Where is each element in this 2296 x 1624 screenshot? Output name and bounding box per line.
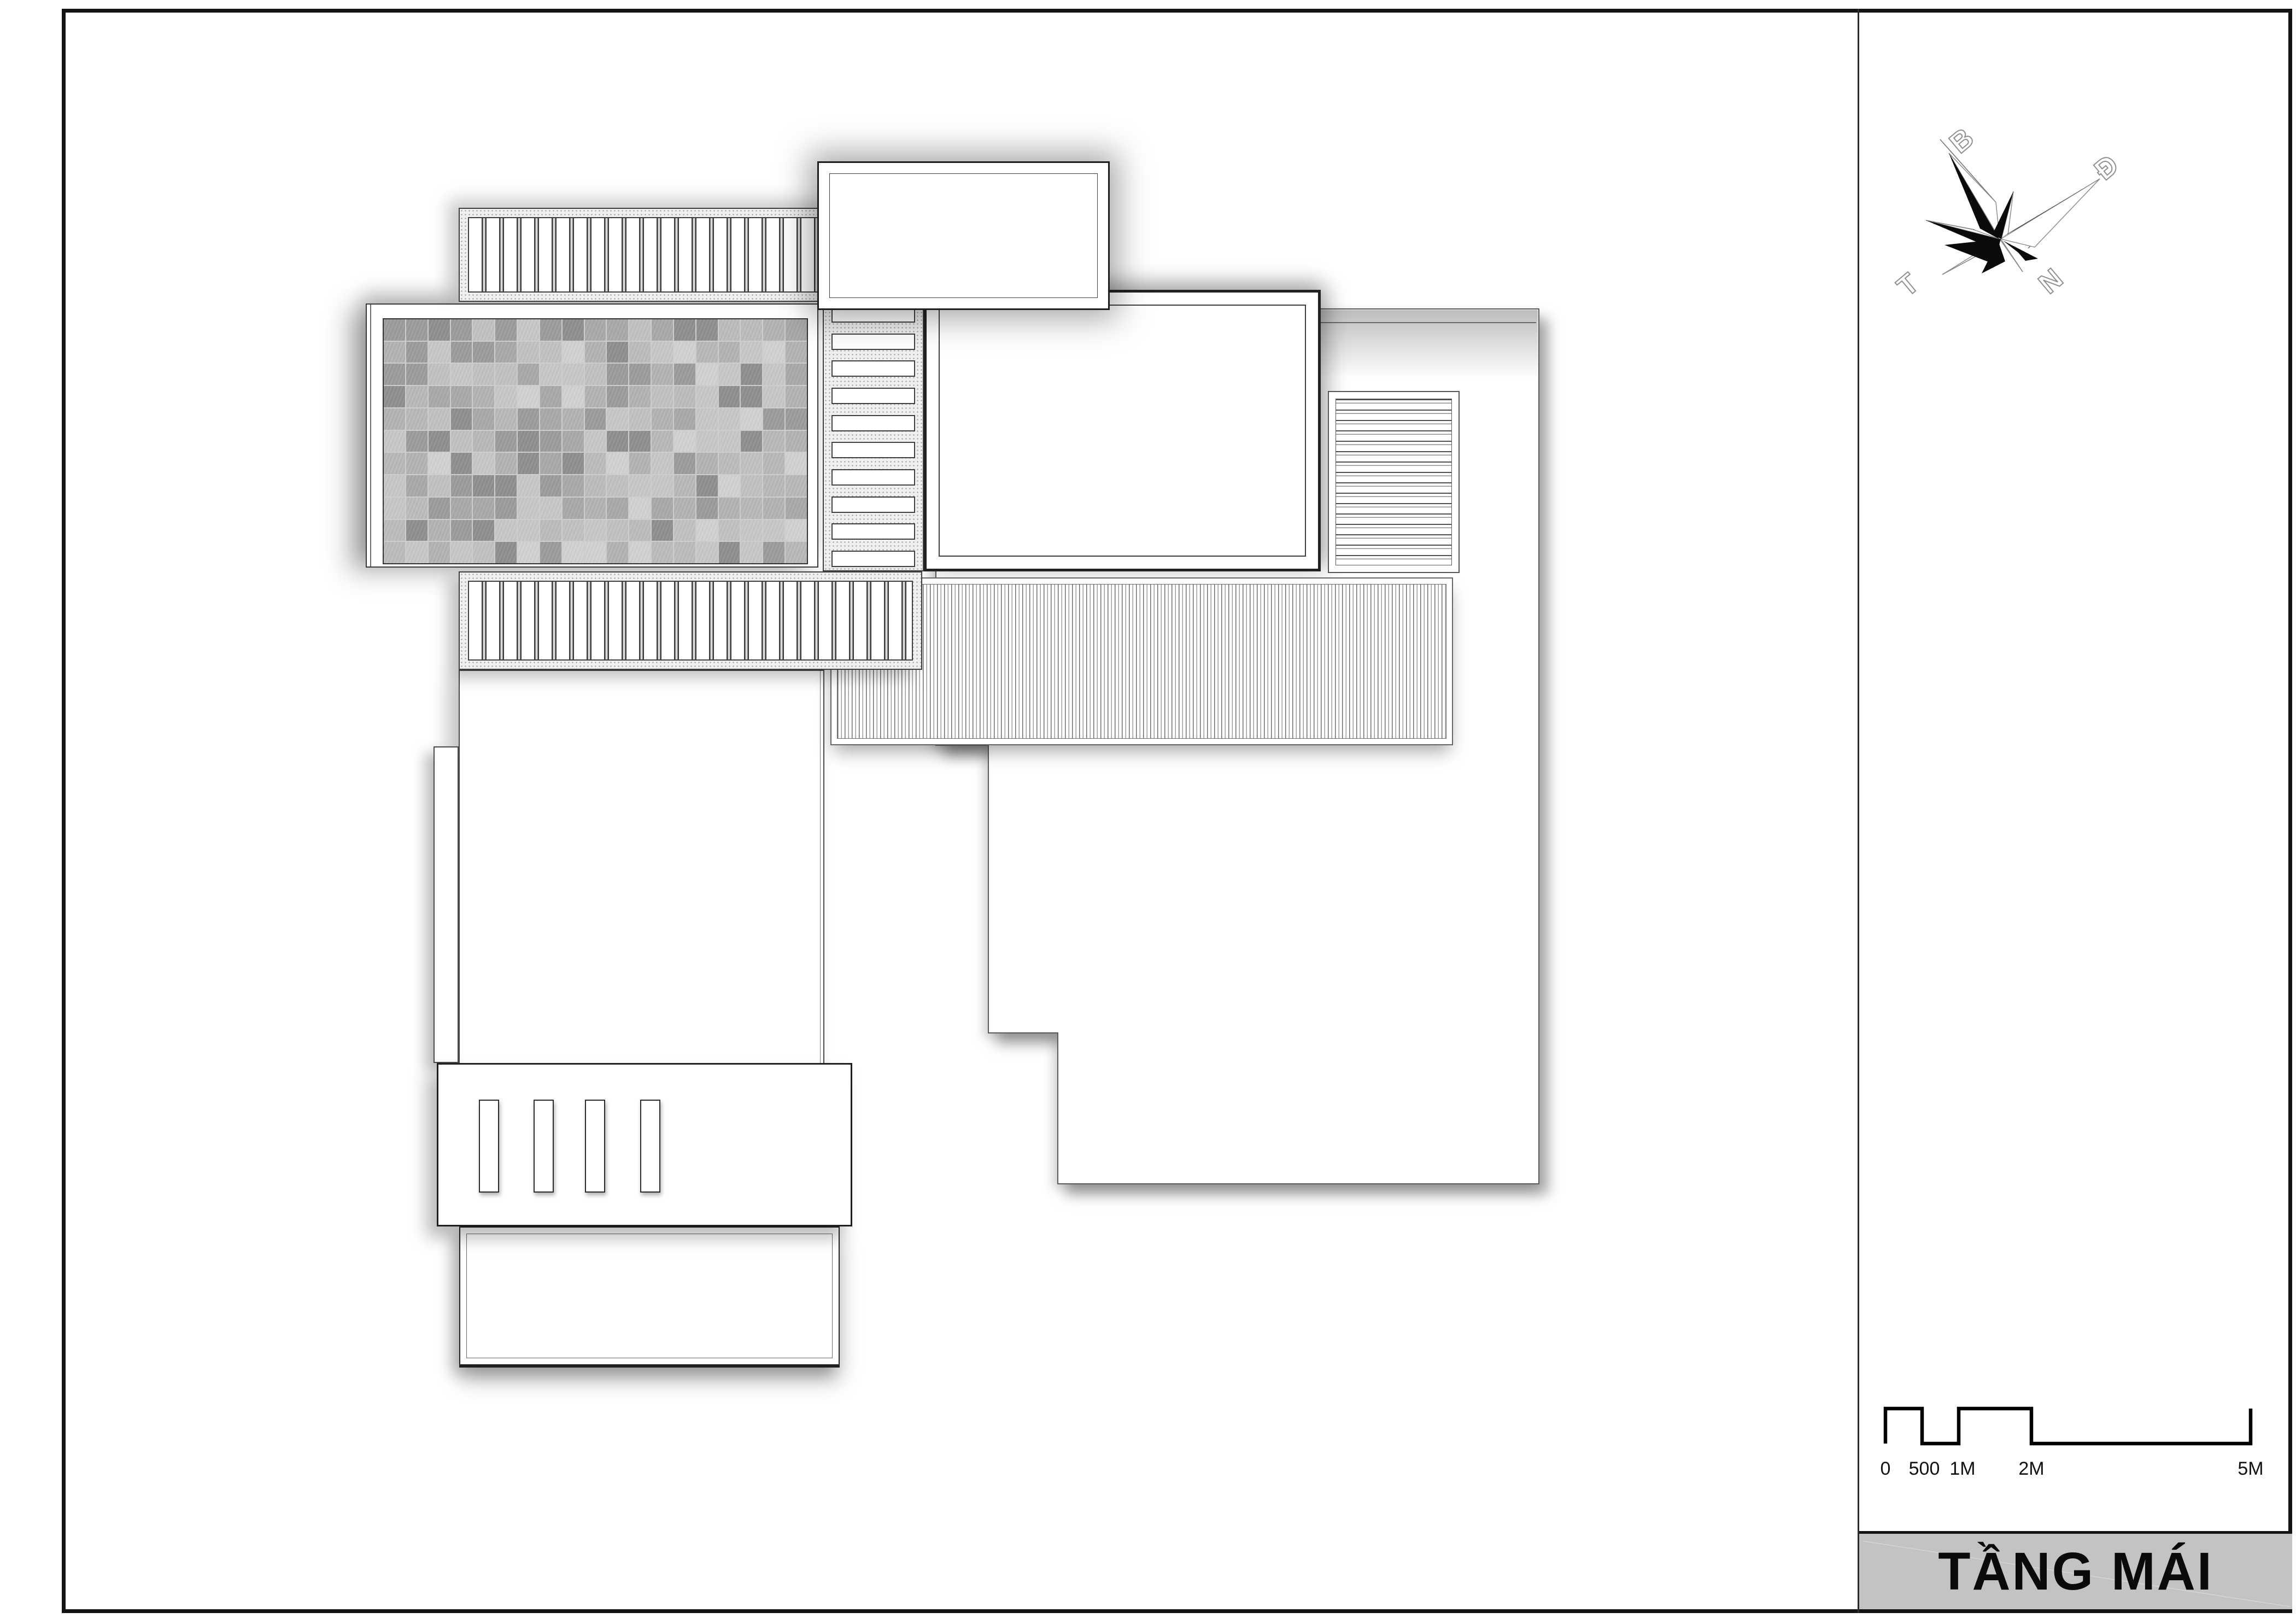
terrace-tile — [741, 453, 762, 474]
terrace-tile — [540, 364, 561, 385]
terrace-tile — [763, 364, 784, 385]
terrace-tile — [652, 319, 673, 341]
terrace-tile — [585, 408, 606, 430]
terrace-tile — [719, 386, 740, 407]
terrace-tile — [384, 431, 405, 452]
terrace-tile — [540, 431, 561, 452]
scale-label: 5M — [2238, 1458, 2263, 1479]
terrace-tile — [652, 453, 673, 474]
terrace-tile — [563, 542, 584, 563]
terrace-tile — [652, 342, 673, 363]
terrace-tile — [406, 342, 427, 363]
terrace-tile — [451, 319, 472, 341]
terrace-tile — [607, 408, 628, 430]
terrace-tile — [495, 386, 517, 407]
terrace-tile — [629, 364, 651, 385]
louver-ladder-bar — [831, 442, 915, 458]
terrace-tile — [696, 453, 718, 474]
canopy-slat — [640, 1100, 660, 1193]
terrace-tile — [495, 431, 517, 452]
terrace-tile — [540, 408, 561, 430]
terrace-tile — [696, 386, 718, 407]
terrace-tile — [473, 364, 494, 385]
terrace-tile — [429, 453, 450, 474]
terrace-tile — [540, 319, 561, 341]
terrace-tile — [585, 319, 606, 341]
terrace-tile — [563, 386, 584, 407]
terrace-tile — [563, 342, 584, 363]
louver-ladder-bar — [831, 334, 915, 350]
terrace-tile — [629, 475, 651, 496]
roof-terrace-tiles — [383, 318, 808, 564]
terrace-tile — [696, 520, 718, 541]
terrace-tile — [518, 475, 539, 496]
terrace-tile — [585, 453, 606, 474]
terrace-tile — [629, 319, 651, 341]
terrace-tile — [786, 342, 807, 363]
scale-bar: 0 500 1M 2M 5M — [1870, 1392, 2285, 1496]
terrace-tile — [451, 520, 472, 541]
terrace-tile — [741, 386, 762, 407]
terrace-tile — [763, 498, 784, 519]
terrace-tile — [674, 319, 695, 341]
compass-west-label: T — [1891, 267, 1925, 303]
terrace-tile — [629, 520, 651, 541]
terrace-tile — [607, 364, 628, 385]
terrace-tile — [384, 319, 405, 341]
terrace-tile — [495, 342, 517, 363]
terrace-tile — [652, 520, 673, 541]
terrace-tile — [406, 386, 427, 407]
scale-bar-line — [1885, 1409, 2251, 1444]
terrace-tile — [629, 453, 651, 474]
terrace-tile — [674, 542, 695, 563]
terrace-tile — [406, 475, 427, 496]
terrace-tile — [607, 453, 628, 474]
terrace-tile — [696, 408, 718, 430]
terrace-tile — [518, 498, 539, 519]
terrace-tile — [696, 542, 718, 563]
terrace-tile — [406, 542, 427, 563]
terrace-tile — [563, 498, 584, 519]
terrace-tile — [719, 542, 740, 563]
terrace-tile — [518, 453, 539, 474]
terrace-tile — [473, 542, 494, 563]
terrace-tile — [384, 498, 405, 519]
terrace-tile — [473, 342, 494, 363]
terrace-tile — [518, 408, 539, 430]
terrace-tile — [786, 386, 807, 407]
terrace-tile — [786, 475, 807, 496]
terrace-tile — [518, 319, 539, 341]
middle-roof-box-inner-line — [939, 305, 1306, 557]
middle-roof-box — [924, 290, 1321, 571]
terrace-tile — [607, 520, 628, 541]
compass-white-blades — [1926, 153, 2100, 274]
upper-roof-box-inner-line — [829, 173, 1098, 298]
terrace-tile — [384, 342, 405, 363]
terrace-tile — [629, 431, 651, 452]
terrace-tile — [473, 453, 494, 474]
terrace-tile — [384, 386, 405, 407]
lower-roof-box — [459, 1226, 840, 1368]
terrace-tile — [563, 520, 584, 541]
terrace-tile — [786, 542, 807, 563]
terrace-tile — [719, 498, 740, 519]
terrace-tile — [786, 431, 807, 452]
terrace-tile — [763, 542, 784, 563]
terrace-tile — [384, 542, 405, 563]
louver-ladder-bar — [831, 496, 915, 513]
terrace-tile — [429, 498, 450, 519]
terrace-tile — [786, 520, 807, 541]
terrace-tile — [629, 498, 651, 519]
terrace-tile — [652, 386, 673, 407]
terrace-tile — [451, 364, 472, 385]
terrace-tile — [406, 520, 427, 541]
terrace-tile — [451, 542, 472, 563]
terrace-tile — [719, 319, 740, 341]
terrace-tile — [674, 364, 695, 385]
terrace-tile — [652, 498, 673, 519]
terrace-tile — [540, 475, 561, 496]
terrace-tile — [473, 520, 494, 541]
terrace-tile — [585, 386, 606, 407]
terrace-tile — [563, 475, 584, 496]
terrace-tile — [495, 475, 517, 496]
terrace-tile — [495, 408, 517, 430]
terrace-tile — [696, 319, 718, 341]
terrace-tile — [741, 319, 762, 341]
compass-rose: B Đ T N — [1881, 118, 2143, 347]
lower-roof-box-inner-line — [466, 1234, 833, 1358]
terrace-tile — [607, 319, 628, 341]
terrace-tile — [495, 542, 517, 563]
panel-separator-line — [1858, 9, 1859, 1613]
terrace-tile — [518, 342, 539, 363]
terrace-tile — [585, 475, 606, 496]
terrace-tile — [429, 342, 450, 363]
terrace-tile — [495, 520, 517, 541]
terrace-tile — [607, 542, 628, 563]
terrace-tile — [629, 408, 651, 430]
terrace-tile — [495, 364, 517, 385]
terrace-tile — [652, 542, 673, 563]
terrace-tile — [719, 475, 740, 496]
terrace-tile — [406, 408, 427, 430]
terrace-tile — [719, 431, 740, 452]
terrace-tile — [652, 364, 673, 385]
terrace-tile — [518, 386, 539, 407]
terrace-tile — [674, 498, 695, 519]
terrace-tile — [763, 453, 784, 474]
terrace-tile — [585, 542, 606, 563]
drawing-title: TẦNG MÁI — [1938, 1541, 2213, 1602]
terrace-tile — [763, 520, 784, 541]
terrace-tile — [429, 386, 450, 407]
terrace-tile — [719, 520, 740, 541]
canopy-slat — [534, 1100, 554, 1193]
sheet: B Đ T N 0 500 1M 2M 5M TẦNG MÁI — [0, 0, 2296, 1624]
terrace-tile — [406, 498, 427, 519]
terrace-tile — [518, 542, 539, 563]
scale-label: 500 — [1909, 1458, 1940, 1479]
louver-ladder-bar — [831, 551, 915, 567]
terrace-tile — [674, 520, 695, 541]
terrace-tile — [674, 408, 695, 430]
terrace-tile — [495, 319, 517, 341]
left-wing-roof — [459, 670, 824, 1066]
terrace-tile — [384, 453, 405, 474]
terrace-tile — [540, 520, 561, 541]
terrace-tile — [741, 408, 762, 430]
terrace-tile — [674, 453, 695, 474]
terrace-tile — [585, 431, 606, 452]
terrace-tile — [429, 542, 450, 563]
terrace-tile — [429, 408, 450, 430]
terrace-tile — [540, 386, 561, 407]
terrace-tile — [652, 431, 673, 452]
terrace-tile — [763, 319, 784, 341]
terrace-tile — [451, 408, 472, 430]
terrace-tile — [384, 520, 405, 541]
terrace-tile — [518, 431, 539, 452]
vent-louver-fins — [1336, 399, 1452, 565]
terrace-tile — [473, 386, 494, 407]
terrace-tile — [451, 498, 472, 519]
terrace-tile — [696, 498, 718, 519]
terrace-tile — [563, 408, 584, 430]
upper-roof-box — [817, 161, 1110, 310]
terrace-tile — [429, 431, 450, 452]
terrace-tile — [741, 364, 762, 385]
terrace-tile — [406, 431, 427, 452]
terrace-tile — [719, 342, 740, 363]
terrace-tile — [786, 453, 807, 474]
terrace-tile — [607, 475, 628, 496]
terrace-tile — [540, 342, 561, 363]
terrace-tile — [451, 475, 472, 496]
terrace-tile — [406, 453, 427, 474]
vent-louver-box — [1328, 391, 1460, 573]
terrace-tile — [674, 342, 695, 363]
canopy-slat — [585, 1100, 605, 1193]
terrace-tile — [473, 498, 494, 519]
terrace-tile — [607, 386, 628, 407]
terrace-tile — [786, 498, 807, 519]
terrace-tile — [629, 386, 651, 407]
terrace-tile — [786, 408, 807, 430]
terrace-tile — [451, 431, 472, 452]
terrace-tile — [406, 364, 427, 385]
terrace-tile — [674, 431, 695, 452]
terrace-tile — [607, 431, 628, 452]
louver-ladder-bar — [831, 523, 915, 540]
louver-ladder-bar — [831, 415, 915, 431]
terrace-tile — [674, 386, 695, 407]
terrace-tile — [741, 498, 762, 519]
terrace-tile — [473, 319, 494, 341]
terrace-tile — [629, 342, 651, 363]
terrace-tile — [652, 408, 673, 430]
terrace-tile — [607, 342, 628, 363]
terrace-tile — [518, 364, 539, 385]
terrace-tile — [563, 431, 584, 452]
terrace-tile — [763, 431, 784, 452]
terrace-tile — [429, 475, 450, 496]
canopy-slat-box — [437, 1063, 852, 1226]
compass-black-blades — [1926, 153, 2100, 273]
louver-ladder-bar — [831, 469, 915, 486]
terrace-tile — [741, 431, 762, 452]
scale-label: 0 — [1881, 1458, 1891, 1479]
terrace-tile — [540, 453, 561, 474]
terrace-tile — [384, 475, 405, 496]
terrace-tile — [763, 386, 784, 407]
terrace-tile — [563, 364, 584, 385]
canopy-slat — [479, 1100, 499, 1193]
terrace-tile — [585, 520, 606, 541]
terrace-tile — [786, 364, 807, 385]
terrace-tile — [406, 319, 427, 341]
terrace-tile — [518, 520, 539, 541]
terrace-tile — [786, 319, 807, 341]
terrace-tile — [629, 542, 651, 563]
terrace-tile — [741, 542, 762, 563]
striped-roof-band — [830, 577, 1453, 745]
terrace-tile — [763, 475, 784, 496]
title-block: TẦNG MÁI — [1859, 1531, 2292, 1609]
terrace-tile — [763, 342, 784, 363]
terrace-tile — [473, 408, 494, 430]
eave-strip — [434, 746, 459, 1063]
terrace-tile — [696, 364, 718, 385]
terrace-tile — [495, 453, 517, 474]
terrace-tile — [741, 475, 762, 496]
terrace-tile — [451, 386, 472, 407]
terrace-tile — [719, 364, 740, 385]
terrace-tile — [451, 453, 472, 474]
terrace-tile — [429, 319, 450, 341]
terrace-tile — [696, 342, 718, 363]
compass-east-label: Đ — [2089, 149, 2125, 186]
terrace-tile — [540, 498, 561, 519]
terrace-tile — [473, 475, 494, 496]
terrace-tile — [696, 475, 718, 496]
terrace-tile — [674, 475, 695, 496]
terrace-tile — [696, 431, 718, 452]
louver-ladder-strip — [823, 302, 924, 571]
terrace-tile — [384, 408, 405, 430]
pergola-slats — [468, 581, 913, 661]
terrace-tile — [495, 498, 517, 519]
terrace-tile — [384, 364, 405, 385]
terrace-tile — [719, 408, 740, 430]
terrace-tile — [429, 364, 450, 385]
terrace-tile — [741, 520, 762, 541]
louver-ladder-bar — [831, 388, 915, 404]
terrace-tile — [473, 431, 494, 452]
striped-roof-band-fins — [837, 584, 1446, 739]
terrace-tile — [585, 364, 606, 385]
terrace-tile — [563, 319, 584, 341]
louver-ladder-bar — [831, 360, 915, 377]
terrace-tile — [741, 342, 762, 363]
scale-label: 1M — [1949, 1458, 1975, 1479]
terrace-tile — [585, 342, 606, 363]
compass-south-label: N — [2033, 262, 2069, 300]
terrace-tile — [563, 453, 584, 474]
terrace-tile — [540, 542, 561, 563]
terrace-tile — [763, 408, 784, 430]
pergola-band-middle — [459, 571, 922, 670]
terrace-tile — [429, 520, 450, 541]
terrace-tile — [607, 498, 628, 519]
terrace-tile — [719, 453, 740, 474]
terrace-tile — [451, 342, 472, 363]
terrace-tile — [585, 498, 606, 519]
scale-label: 2M — [2018, 1458, 2044, 1479]
terrace-tile — [652, 475, 673, 496]
